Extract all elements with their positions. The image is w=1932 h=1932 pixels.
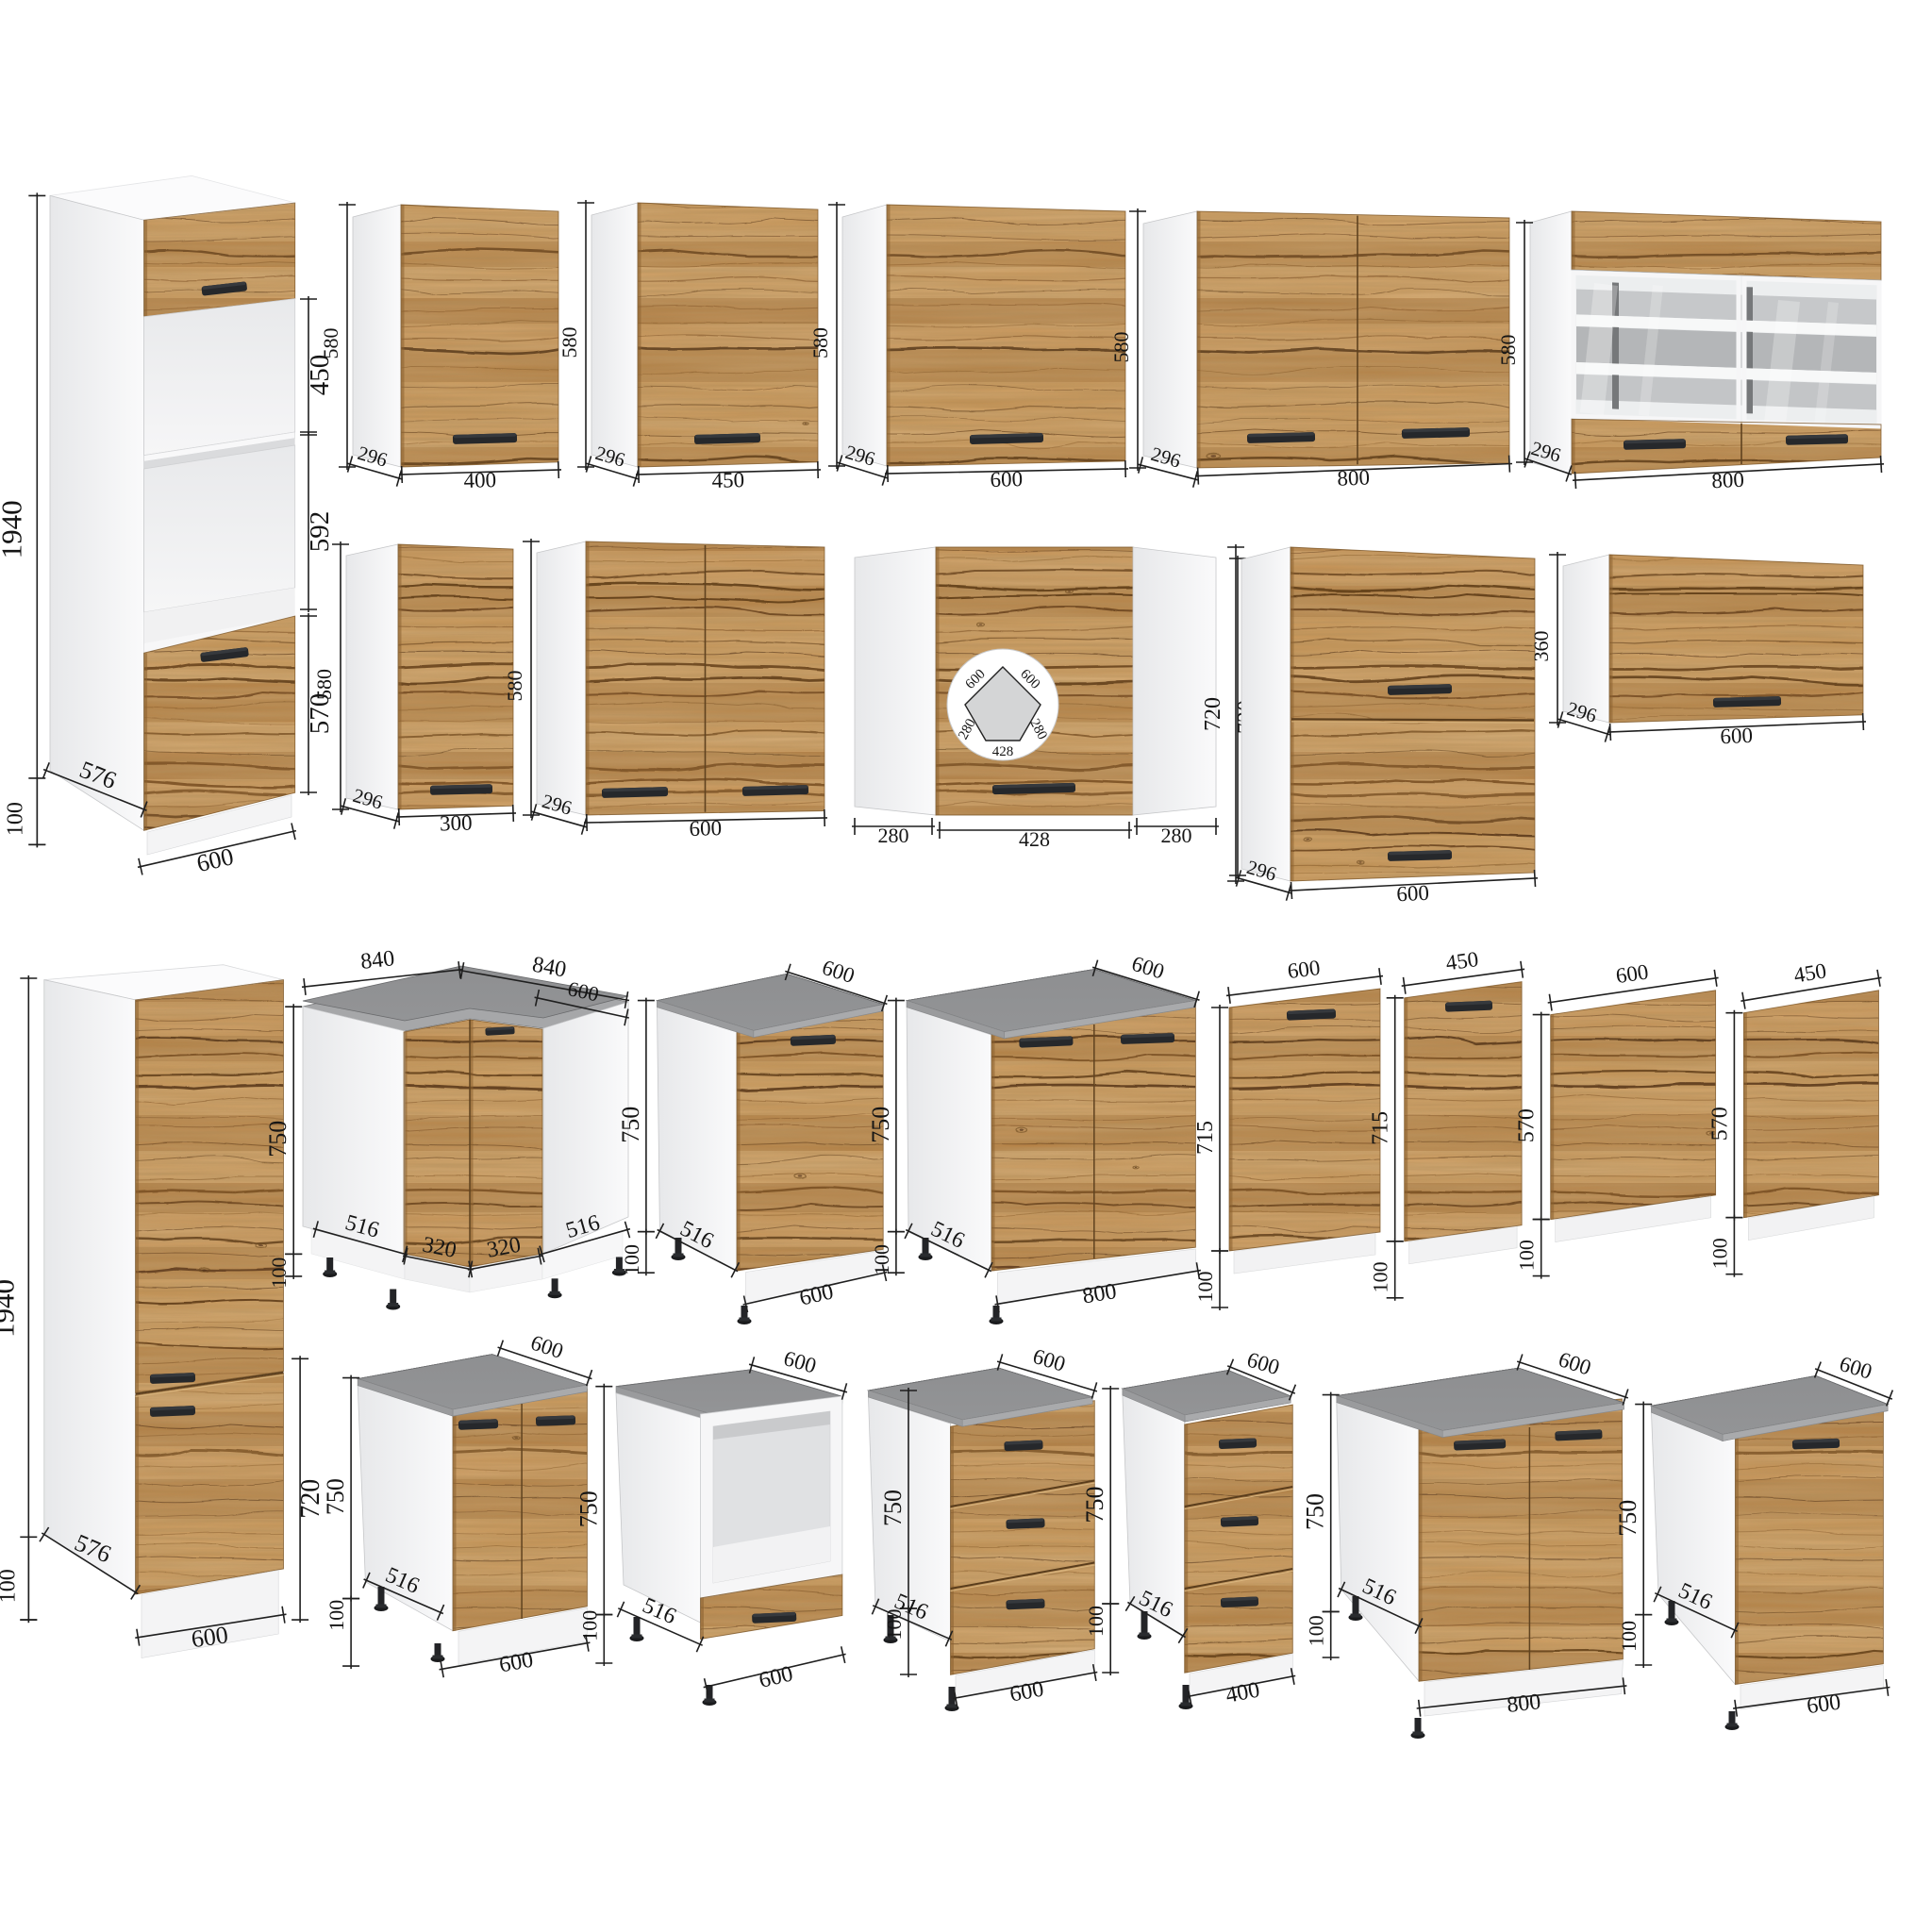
svg-text:100: 100	[1193, 1272, 1217, 1303]
svg-text:100: 100	[1515, 1240, 1539, 1271]
svg-text:580: 580	[808, 327, 832, 358]
svg-text:100: 100	[1305, 1615, 1328, 1646]
svg-text:715: 715	[1369, 1111, 1393, 1145]
svg-text:450: 450	[305, 355, 335, 396]
svg-text:1940: 1940	[0, 500, 27, 558]
svg-text:580: 580	[319, 328, 342, 359]
svg-text:100: 100	[0, 1569, 20, 1603]
svg-text:600: 600	[1614, 959, 1650, 988]
svg-text:840: 840	[359, 946, 396, 974]
svg-text:600: 600	[1286, 956, 1321, 983]
svg-text:100: 100	[577, 1610, 601, 1641]
svg-text:592: 592	[305, 511, 335, 553]
svg-text:580: 580	[503, 671, 526, 702]
svg-text:750: 750	[867, 1107, 894, 1143]
svg-text:750: 750	[1302, 1493, 1329, 1530]
svg-text:100: 100	[325, 1600, 348, 1631]
svg-text:750: 750	[575, 1491, 602, 1527]
svg-text:1940: 1940	[0, 1279, 20, 1338]
svg-text:600: 600	[689, 816, 722, 841]
svg-text:600: 600	[990, 467, 1023, 491]
svg-text:100: 100	[620, 1244, 643, 1275]
svg-text:360: 360	[1529, 631, 1553, 662]
svg-text:450: 450	[711, 468, 744, 492]
svg-text:100: 100	[1369, 1261, 1392, 1292]
svg-text:100: 100	[1707, 1238, 1731, 1269]
svg-text:570: 570	[1707, 1107, 1732, 1141]
svg-text:100: 100	[1084, 1606, 1108, 1637]
svg-text:750: 750	[1614, 1500, 1641, 1537]
svg-text:750: 750	[879, 1490, 907, 1526]
svg-text:750: 750	[617, 1107, 644, 1143]
svg-text:450: 450	[1444, 947, 1480, 974]
svg-text:600: 600	[1806, 1690, 1842, 1720]
svg-text:750: 750	[264, 1121, 291, 1158]
svg-text:715: 715	[1193, 1121, 1218, 1155]
svg-text:300: 300	[440, 811, 473, 836]
svg-text:570: 570	[1515, 1108, 1540, 1142]
svg-text:100: 100	[267, 1257, 291, 1289]
svg-text:600: 600	[1720, 724, 1753, 748]
svg-text:400: 400	[463, 468, 496, 492]
svg-text:570: 570	[305, 693, 335, 735]
svg-text:600: 600	[1396, 881, 1430, 907]
svg-text:100: 100	[870, 1244, 893, 1275]
svg-text:580: 580	[1496, 335, 1520, 366]
svg-text:800: 800	[1337, 465, 1370, 490]
svg-text:720: 720	[1201, 697, 1225, 731]
svg-text:800: 800	[1506, 1690, 1542, 1718]
svg-text:280: 280	[878, 824, 909, 847]
svg-text:100: 100	[1617, 1621, 1641, 1652]
svg-text:428: 428	[1019, 827, 1050, 851]
svg-text:600: 600	[190, 1621, 230, 1653]
svg-text:100: 100	[3, 802, 27, 836]
svg-text:280: 280	[1161, 824, 1192, 847]
svg-text:428: 428	[992, 744, 1014, 759]
svg-text:800: 800	[1711, 468, 1745, 493]
svg-text:750: 750	[1081, 1487, 1108, 1524]
svg-text:580: 580	[1109, 332, 1133, 363]
svg-text:580: 580	[558, 327, 581, 358]
svg-text:750: 750	[322, 1478, 349, 1515]
